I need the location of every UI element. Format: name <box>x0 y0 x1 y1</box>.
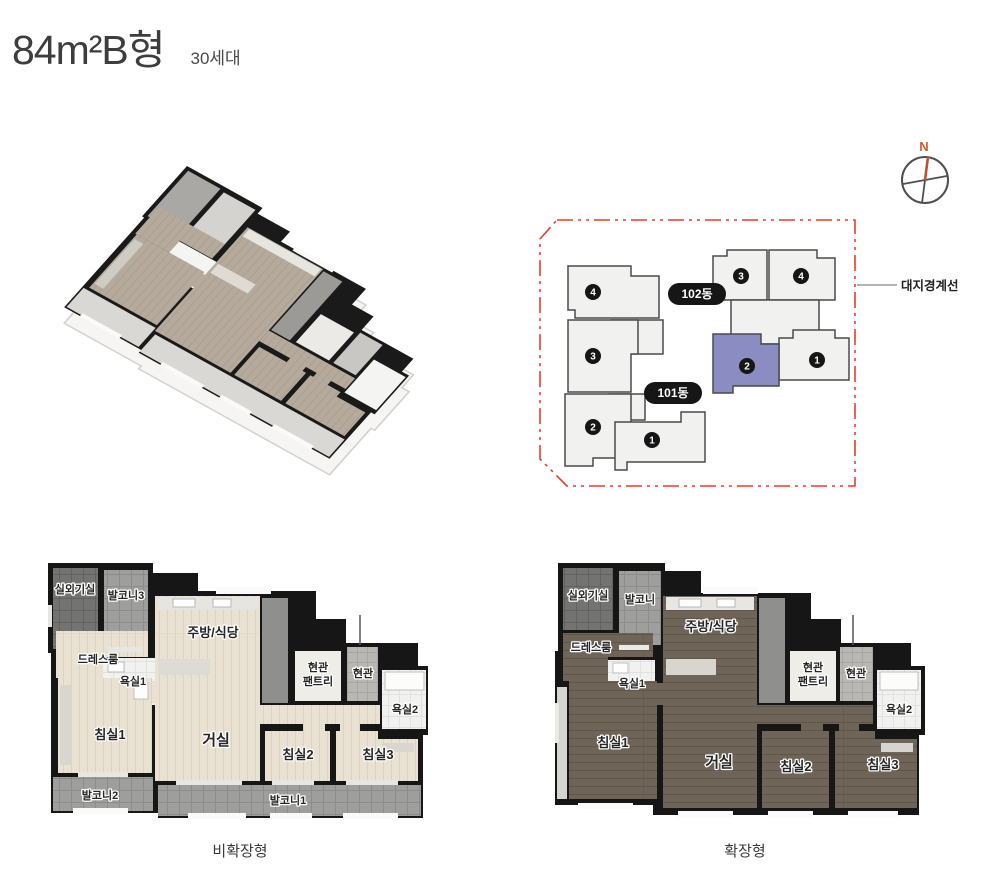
floor-plan-page: 84m²B형 30세대 <box>0 0 983 873</box>
room-label-entrance: 현관 <box>353 666 373 680</box>
room-label-kitchen: 주방/식당 <box>187 625 238 640</box>
svg-text:2: 2 <box>744 362 750 373</box>
room-label-bath2: 욕실2 <box>886 702 912 716</box>
floor-plan-non-expanded: 실외기실 발코니3 주방/식당 드레스룸 욕실1 현관 팬트리 현관 욕실2 침… <box>48 563 433 825</box>
svg-text:3: 3 <box>738 272 744 283</box>
room-label-bath1: 욕실1 <box>619 676 645 690</box>
svg-text:1: 1 <box>814 356 820 367</box>
compass-icon: N <box>902 140 948 203</box>
page-header: 84m²B형 30세대 <box>12 16 241 76</box>
isometric-3d-plan <box>35 122 485 534</box>
svg-text:3: 3 <box>590 352 596 363</box>
room-label-pantry-line1: 현관 <box>803 660 823 674</box>
rooms <box>557 568 921 808</box>
badge-102dong-label: 102동 <box>681 287 712 301</box>
page-title: 84m²B형 <box>12 16 164 76</box>
room-label-bath1: 욕실1 <box>120 674 146 688</box>
room-label-bed2: 침실2 <box>780 759 811 774</box>
room-label-dressroom: 드레스룸 <box>78 652 118 666</box>
caption-non-expanded: 비확장형 <box>40 840 440 861</box>
room-label-pantry-line1: 현관 <box>308 660 328 674</box>
room-label-balcony1: 발코니1 <box>270 793 306 807</box>
badge-101dong-label: 101동 <box>657 386 688 400</box>
svg-text:2: 2 <box>590 423 596 434</box>
units-count: 30세대 <box>190 44 240 69</box>
room-label-living: 거실 <box>705 754 733 771</box>
room-label-bed1: 침실1 <box>597 735 628 750</box>
room-label-living: 거실 <box>202 732 230 749</box>
room-label-dressroom: 드레스룸 <box>571 640 611 654</box>
svg-text:4: 4 <box>590 288 596 299</box>
room-label-balcony: 발코니 <box>625 592 655 606</box>
room-label-bed3: 침실3 <box>867 757 898 772</box>
room-label-outdoor-unit: 실외기실 <box>568 588 608 602</box>
room-label-bed3: 침실3 <box>362 747 393 762</box>
svg-text:1: 1 <box>649 436 655 447</box>
svg-text:4: 4 <box>798 272 804 283</box>
site-plan: N 대지경계선 4 3 2 1 3 4 <box>535 140 983 510</box>
room-label-bed1: 침실1 <box>94 727 125 742</box>
room-label-pantry-line2: 팬트리 <box>798 674 828 688</box>
room-label-balcony3: 발코니3 <box>108 588 144 602</box>
floor-plan-expanded: 실외기실 발코니 주방/식당 드레스룸 욕실1 현관 팬트리 현관 욕실2 침실… <box>553 563 927 825</box>
compass-n-label: N <box>919 140 928 154</box>
room-label-pantry-line2: 팬트리 <box>303 674 333 688</box>
rooms <box>53 568 426 816</box>
room-label-balcony2: 발코니2 <box>82 788 118 802</box>
building-102 <box>713 250 849 393</box>
room-label-kitchen: 주방/식당 <box>685 619 736 634</box>
iso-floor <box>59 166 461 461</box>
room-label-outdoor-unit: 실외기실 <box>55 582 95 596</box>
room-label-bed2: 침실2 <box>282 747 313 762</box>
room-label-bath2: 욕실2 <box>392 702 418 716</box>
boundary-label: 대지경계선 <box>901 278 959 293</box>
caption-expanded: 확장형 <box>545 840 945 861</box>
room-label-entrance: 현관 <box>846 666 866 680</box>
